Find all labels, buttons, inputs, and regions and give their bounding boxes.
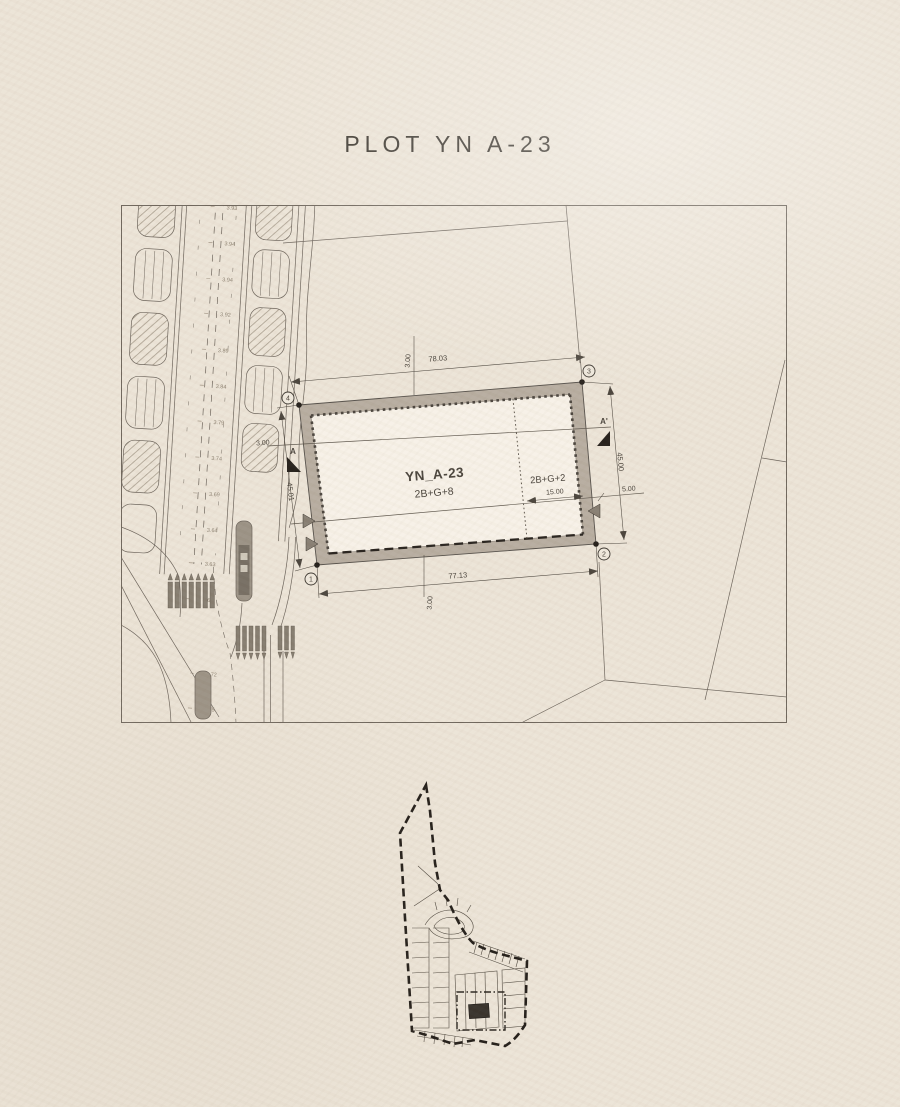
lane-marks [179, 205, 201, 553]
key-plan-drawing [385, 778, 545, 1058]
key-plan-highlighted-plot [469, 1003, 490, 1018]
dim-bottom: 77.13 [448, 570, 467, 581]
key-plan [385, 778, 545, 1058]
pedestrian-crossing [168, 574, 215, 609]
median-island [195, 671, 211, 719]
spot-level: 3.94 [224, 241, 235, 248]
dim-left: 45.01 [285, 482, 296, 502]
spot-level: 3.89 [218, 348, 229, 355]
page-title: PLOT YN A-23 [0, 131, 900, 158]
dim-top-setback: 3.00 [405, 354, 413, 368]
spot-level: 3.63 [205, 562, 216, 569]
corner-dot-3 [579, 379, 585, 385]
spot-level: 3.92 [220, 312, 231, 319]
spot-level: 3.84 [215, 384, 226, 391]
corner-dot-1 [314, 562, 320, 568]
median-line [194, 205, 217, 564]
spot-level: 3.69 [209, 492, 220, 499]
corner-number-2: 2 [602, 552, 606, 559]
right-curb-lines [224, 205, 253, 574]
left-curb-lines [160, 205, 188, 574]
corner-dot-4 [296, 402, 302, 408]
dim-right-offset: 5.00 [622, 485, 636, 493]
section-end-flag [597, 431, 610, 446]
dim-right: 45.00 [615, 452, 626, 472]
spot-level: 3.93 [226, 205, 237, 212]
corner-number-3: 3 [587, 369, 591, 376]
pedestrian-crossing [278, 626, 295, 659]
key-plan-boundary [400, 785, 527, 1046]
corner-dot-2 [593, 541, 599, 547]
corner-number-4: 4 [286, 396, 290, 403]
dim-secondary-depth: 15.00 [546, 488, 564, 496]
spot-level: 3.64 [207, 528, 218, 535]
lane-marks [215, 205, 237, 555]
spot-level: 3.74 [211, 456, 222, 463]
pedestrian-crossing [236, 626, 266, 660]
corner-number-1: 1 [309, 577, 313, 584]
dim-left-setback: 3.00 [256, 439, 270, 447]
dim-bottom-setback: 3.00 [427, 596, 435, 610]
spot-level: 3.79 [213, 420, 224, 427]
road-intersection [121, 521, 296, 723]
section-start-label: A [290, 447, 296, 456]
site-plan: 3.93 3.94 3.94 3.92 3.89 3.84 3.79 3.74 … [121, 205, 787, 723]
plot-yn-a23: YN_A-23 2B+G+8 2B+G+2 [267, 382, 644, 565]
section-end-label: A' [600, 417, 608, 426]
site-plan-drawing: 3.93 3.94 3.94 3.92 3.89 3.84 3.79 3.74 … [121, 205, 787, 723]
road-right-islands [241, 205, 294, 473]
spot-level: 3.94 [222, 277, 233, 284]
dim-top: 78.03 [428, 353, 447, 364]
